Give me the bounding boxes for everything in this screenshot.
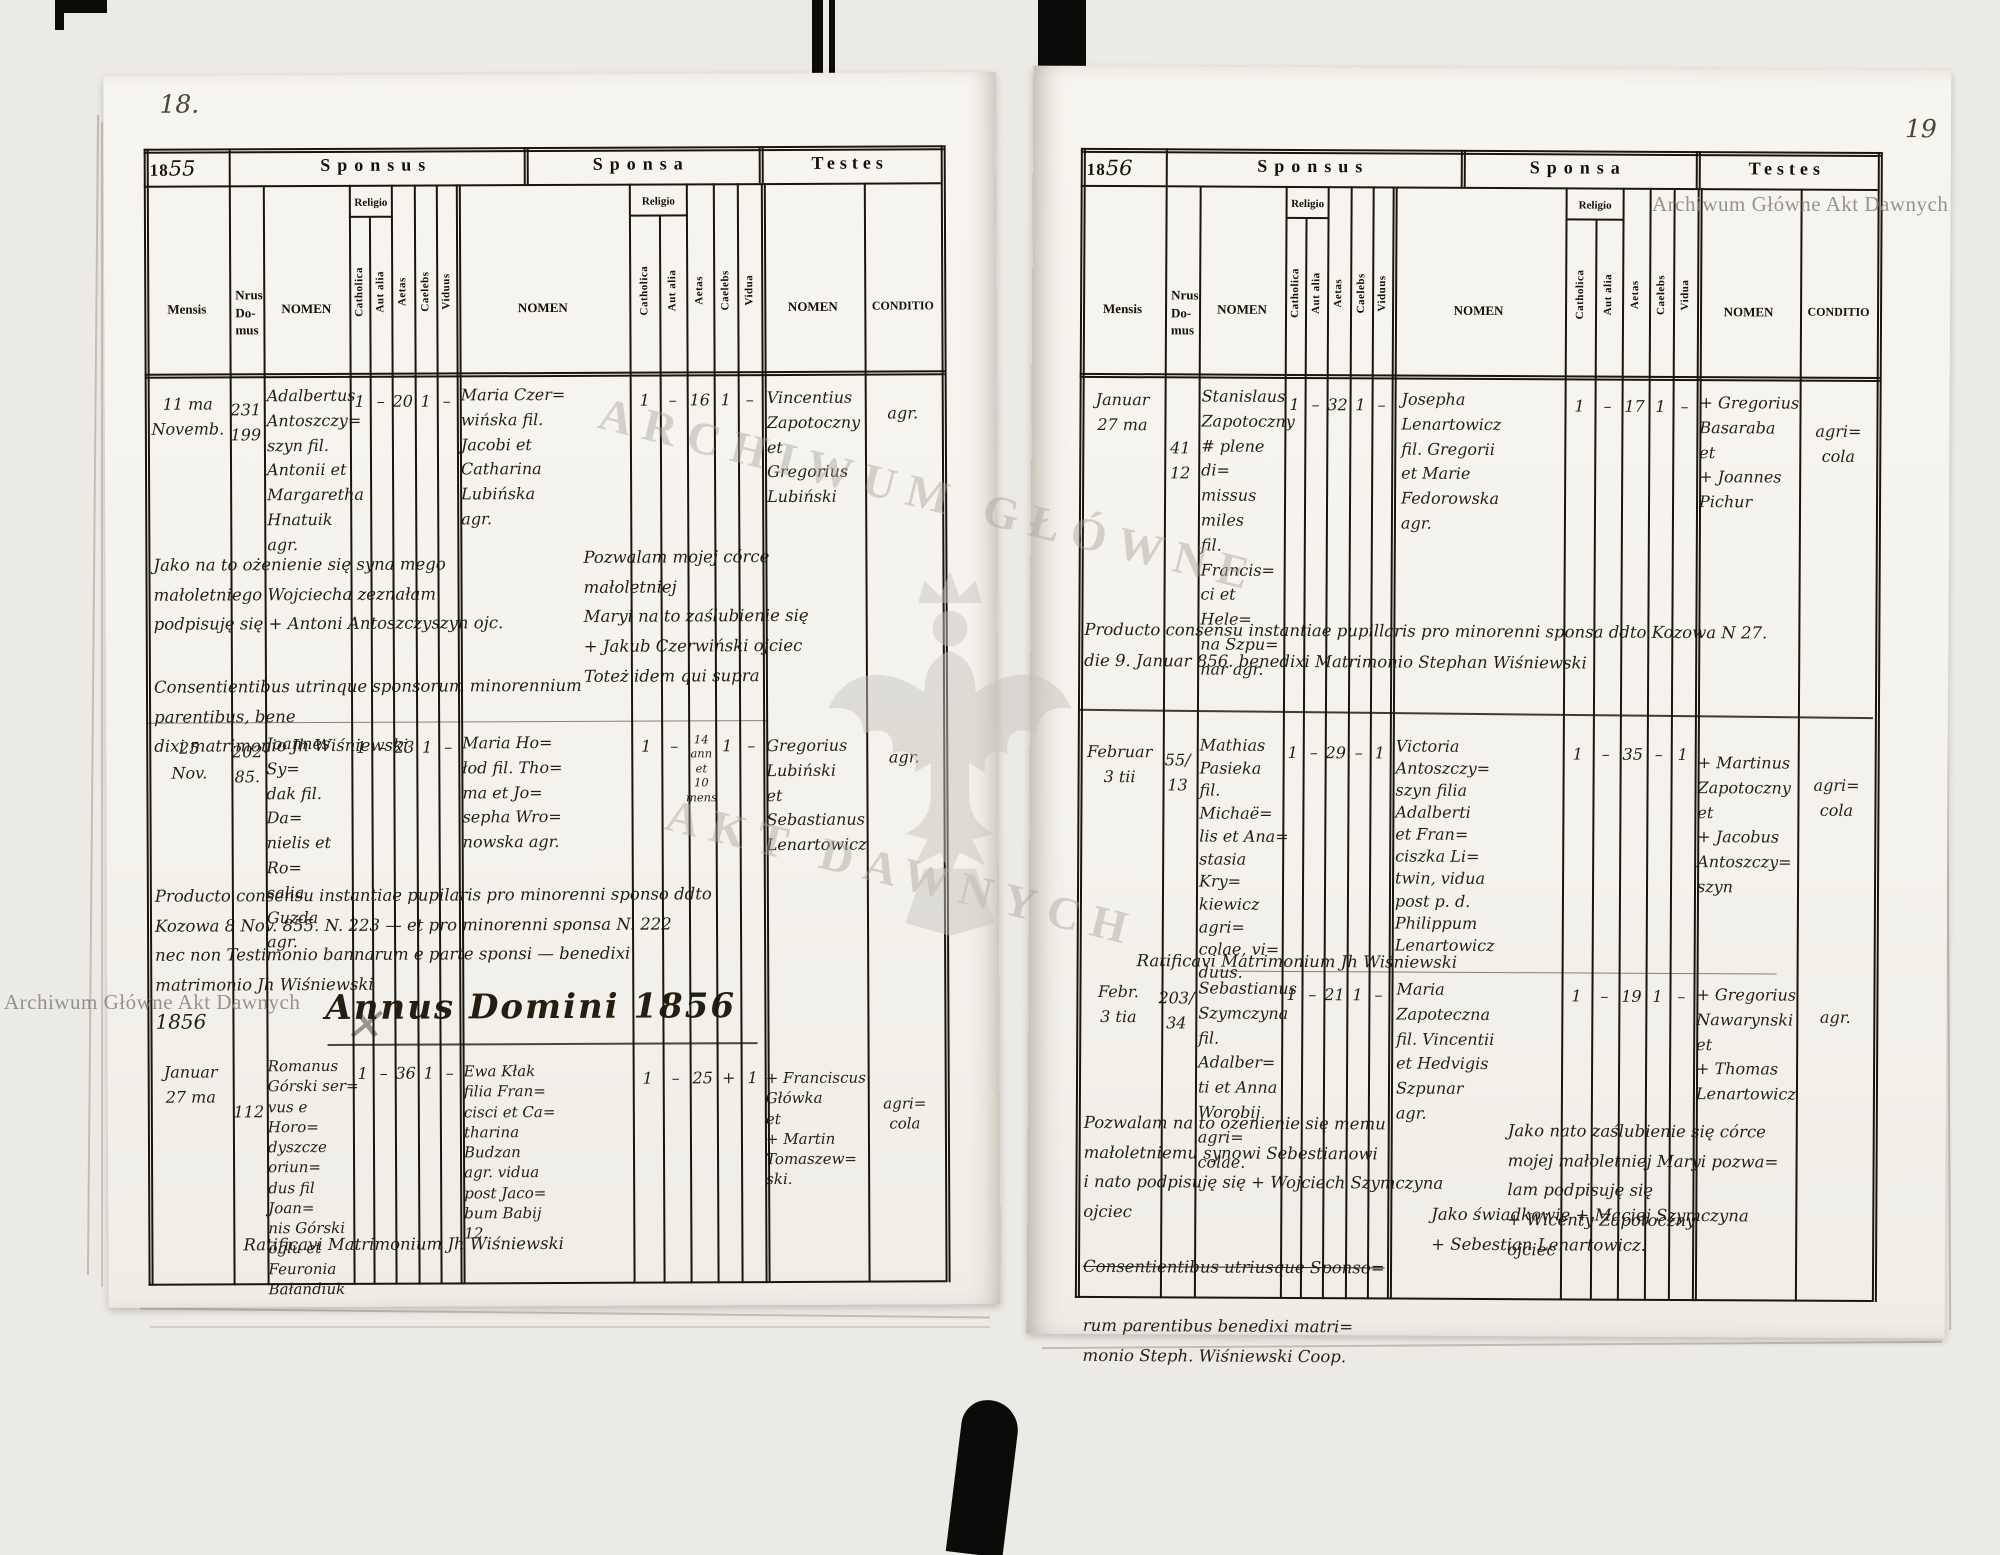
entry-testes-names: + Gregorius Nawarynski et + Thomas Lenar… bbox=[1696, 983, 1805, 1108]
entry-mensis: Januar 27 ma bbox=[1081, 388, 1163, 438]
right-page-number: 19 bbox=[1905, 114, 1937, 143]
heading-underline bbox=[328, 1042, 758, 1046]
vidua-column-label: Vidua bbox=[743, 245, 755, 335]
guardianship-consent-note: Producto consensu instantiae pupillaris … bbox=[1084, 614, 1884, 681]
grid-line bbox=[1872, 152, 1880, 1302]
header-sponsus: Sponsus bbox=[1166, 155, 1461, 178]
entry-conditio: agri= cola bbox=[1801, 420, 1875, 470]
entry-sponsa-vidua: – bbox=[1670, 395, 1698, 420]
right-register-table: 1856 Sponsus Sponsa Testes Mensis Nrus D… bbox=[1075, 148, 1878, 1302]
col-conditio: CONDITIO bbox=[1800, 304, 1877, 321]
entry-mensis: Febr. 3 tia bbox=[1078, 980, 1158, 1030]
caelebs-column-label: Caelebs bbox=[719, 245, 731, 335]
entry-sponsa-catholica: 1 bbox=[634, 1067, 662, 1092]
entry-sponsa-name: Maria Zapoteczna fil. Vincentii et Hedvi… bbox=[1396, 978, 1552, 1128]
entry-sponsus-name: Romanus Górski ser= vus e Horo= dyszcze … bbox=[268, 1056, 363, 1299]
entry-conditio: agri= cola bbox=[1799, 774, 1873, 824]
entry-sponsa-name: Victoria Antoszczy= szyn filia Adalberti… bbox=[1395, 736, 1551, 958]
aetas-column-label: Aetas bbox=[693, 245, 705, 335]
catholica-column-label: Catholica bbox=[1574, 249, 1586, 339]
grid-line bbox=[759, 146, 761, 183]
entry-sponsa-name: Josepha Lenartowicz fil. Gregorii et Mar… bbox=[1401, 388, 1557, 538]
entry-house-number: 202 85. bbox=[230, 740, 264, 790]
entry-mensis: Januar 27 ma bbox=[151, 1060, 231, 1110]
entry-sponsa-aetas: 35 bbox=[1619, 743, 1647, 768]
entry-sponsa-name: Maria Ho= łod fil. Tho= ma et Jo= sepha … bbox=[462, 731, 618, 856]
caelebs-column-label: Caelebs bbox=[1355, 248, 1367, 338]
entry-mensis: 25 Nov. bbox=[149, 736, 229, 786]
grid-line bbox=[1286, 217, 1330, 219]
consent-note-father-sponsus: Pozwalam na to ożenienie się memu małole… bbox=[1083, 1108, 1474, 1229]
caelebs-column-label: Caelebs bbox=[1655, 250, 1667, 340]
entry-sponsa-aut-alia: – bbox=[1592, 743, 1620, 768]
entry-sponsa-catholica: 1 bbox=[632, 735, 660, 760]
col-nomen-sponsa: NOMEN bbox=[456, 299, 629, 317]
col-nomen-sponsus: NOMEN bbox=[1199, 300, 1285, 318]
grid-line bbox=[144, 145, 944, 150]
page-edge bbox=[140, 1308, 990, 1319]
aut-alia-column-label: Aut alia bbox=[1602, 250, 1614, 340]
year-cell: 1856 bbox=[1087, 156, 1163, 180]
entry-sponsa-vidua: – bbox=[737, 734, 765, 759]
entry-testes-names: + Franciscus Główka et + Martin Tomaszew… bbox=[766, 1068, 872, 1190]
ratification-note: Ratificavi Matrimonium Jh Wiśniewski bbox=[243, 1228, 713, 1260]
year-cell: 1855 bbox=[150, 156, 226, 180]
vidua-column-label: Vidua bbox=[1679, 250, 1691, 340]
entry-mensis: 11 ma Novemb. bbox=[148, 392, 228, 442]
scanned-register-page: 18. 1855 Sponsus Sponsa Testes Mensis Nr… bbox=[0, 0, 2000, 1555]
aut-alia-column-label: Aut alia bbox=[666, 245, 678, 335]
grid-line bbox=[524, 147, 526, 184]
caelebs-column-label: Caelebs bbox=[419, 247, 431, 337]
col-mensis: Mensis bbox=[1080, 300, 1165, 318]
religio-column-label: Religio bbox=[629, 195, 688, 207]
entry-sponsa-catholica: 1 bbox=[1565, 394, 1593, 419]
entry-sponsus-name: Adalbertus Antoszczy= szyn fil. Antonii … bbox=[267, 384, 358, 558]
catholica-column-label: Catholica bbox=[638, 246, 650, 336]
catholica-column-label: Catholica bbox=[1289, 248, 1301, 338]
header-testes: Testes bbox=[1696, 158, 1878, 180]
grid-line bbox=[1696, 151, 1698, 188]
header-sponsa: Sponsa bbox=[524, 153, 759, 175]
entry-testes-names: + Martinus Zapotoczny et + Jacobus Antos… bbox=[1697, 751, 1806, 900]
entry-sponsa-catholica: 1 bbox=[1564, 742, 1592, 767]
year-printed: 18 bbox=[1087, 160, 1106, 179]
archive-watermark-top: Archiwum Główne Akt Dawnych bbox=[1652, 192, 1948, 217]
entry-sponsa-aut-alia: – bbox=[660, 734, 688, 759]
annus-domini-heading: Annus Domini 1856 bbox=[325, 980, 775, 1035]
col-mensis: Mensis bbox=[144, 300, 229, 318]
religio-column-label: Religio bbox=[1286, 198, 1330, 210]
aetas-column-label: Aetas bbox=[396, 247, 408, 337]
book-spine-bottom bbox=[946, 1397, 1021, 1555]
entry-conditio: agr. bbox=[1798, 1006, 1872, 1031]
aetas-column-label: Aetas bbox=[1332, 248, 1344, 338]
entry-house-number: 112 bbox=[232, 1100, 266, 1125]
entry-sponsa-name: Ewa Kłak filia Fran= cisci et Ca= tharin… bbox=[464, 1061, 617, 1244]
header-testes: Testes bbox=[759, 152, 941, 174]
grid-line bbox=[1081, 148, 1881, 154]
entry-conditio: agr. bbox=[867, 401, 939, 426]
left-page-number: 18. bbox=[159, 90, 199, 119]
year-handwritten: 56 bbox=[1106, 156, 1133, 180]
entry-sponsa-catholica: 1 bbox=[1562, 984, 1590, 1009]
religio-column-label: Religio bbox=[349, 197, 393, 209]
catholica-column-label: Catholica bbox=[353, 247, 365, 337]
page-edge bbox=[150, 1326, 990, 1328]
entry-sponsa-aut-alia: – bbox=[662, 1066, 690, 1091]
benediction-rest: rum parentibus benedixi matri= monio Ste… bbox=[1083, 1316, 1354, 1366]
grid-line bbox=[1566, 218, 1625, 220]
aut-alia-column-label: Aut alia bbox=[374, 247, 386, 337]
entry-sponsa-aetas: 17 bbox=[1620, 395, 1648, 420]
scan-mark bbox=[55, 0, 64, 30]
header-sponsus: Sponsus bbox=[229, 154, 524, 176]
eagle-watermark bbox=[790, 555, 1110, 955]
entry-house-number: 231 199 bbox=[229, 398, 263, 448]
entry-house-number: 203/ 34 bbox=[1158, 986, 1194, 1036]
year-handwritten: 55 bbox=[169, 157, 196, 181]
page-edge bbox=[87, 115, 99, 1275]
entry-sponsa-vidua: – bbox=[1667, 985, 1695, 1010]
grid-line bbox=[144, 182, 941, 187]
entry-sponsa-vidua: 1 bbox=[739, 1066, 767, 1091]
entry-house-number: 55/ 13 bbox=[1159, 748, 1195, 798]
religio-column-label: Religio bbox=[1566, 199, 1625, 211]
col-conditio: CONDITIO bbox=[864, 297, 941, 314]
entry-house-number: 41 12 bbox=[1163, 436, 1197, 486]
grid-line bbox=[144, 149, 151, 1286]
year-printed: 18 bbox=[150, 161, 169, 180]
viduus-column-label: Viduus bbox=[1376, 248, 1388, 338]
entry-sponsa-aetas: 25 bbox=[689, 1066, 717, 1091]
grid-line bbox=[629, 214, 688, 216]
archive-watermark-bottom: Archiwum Główne Akt Dawnych bbox=[4, 990, 300, 1015]
header-sponsa: Sponsa bbox=[1461, 157, 1696, 179]
entry-sponsa-name: Maria Czer= wińska fil. Jacobi et Cathar… bbox=[461, 383, 617, 532]
entry-sponsa-aut-alia: – bbox=[1593, 395, 1621, 420]
grid-line bbox=[349, 216, 393, 218]
ratification-note: Ratificavi Matrimonium Jh Wiśniewski bbox=[1137, 946, 1577, 978]
entry-sponsa-vidua: – bbox=[736, 388, 764, 413]
grid-line bbox=[1461, 150, 1463, 187]
entry-sponsa-vidua: 1 bbox=[1669, 743, 1697, 768]
benediction-struck-line: Consentientibus utriusque Sponso= bbox=[1083, 1257, 1385, 1278]
aut-alia-column-label: Aut alia bbox=[1310, 248, 1322, 338]
aetas-column-label: Aetas bbox=[1629, 250, 1641, 340]
viduus-column-label: Viduus bbox=[440, 246, 452, 336]
col-nomen-testes: NOMEN bbox=[761, 298, 864, 316]
entry-conditio: agri= cola bbox=[868, 1093, 942, 1134]
entry-testes-names: + Gregorius Basaraba et + Joannes Pichur bbox=[1699, 391, 1808, 516]
col-nomen-sponsa: NOMEN bbox=[1392, 301, 1565, 319]
page-edge bbox=[101, 122, 103, 1287]
entry-sponsa-aut-alia: – bbox=[1590, 985, 1618, 1010]
consent-note-father-sponsus: Jako na to ożenienie się syna mego małol… bbox=[153, 549, 533, 640]
right-page: 19 1856 Sponsus Sponsa Testes Mensis Nru… bbox=[1027, 66, 1952, 1339]
entry-sponsa-aetas: 19 bbox=[1617, 985, 1645, 1010]
col-nomen-testes: NOMEN bbox=[1697, 303, 1800, 321]
col-nomen-sponsus: NOMEN bbox=[263, 300, 349, 318]
